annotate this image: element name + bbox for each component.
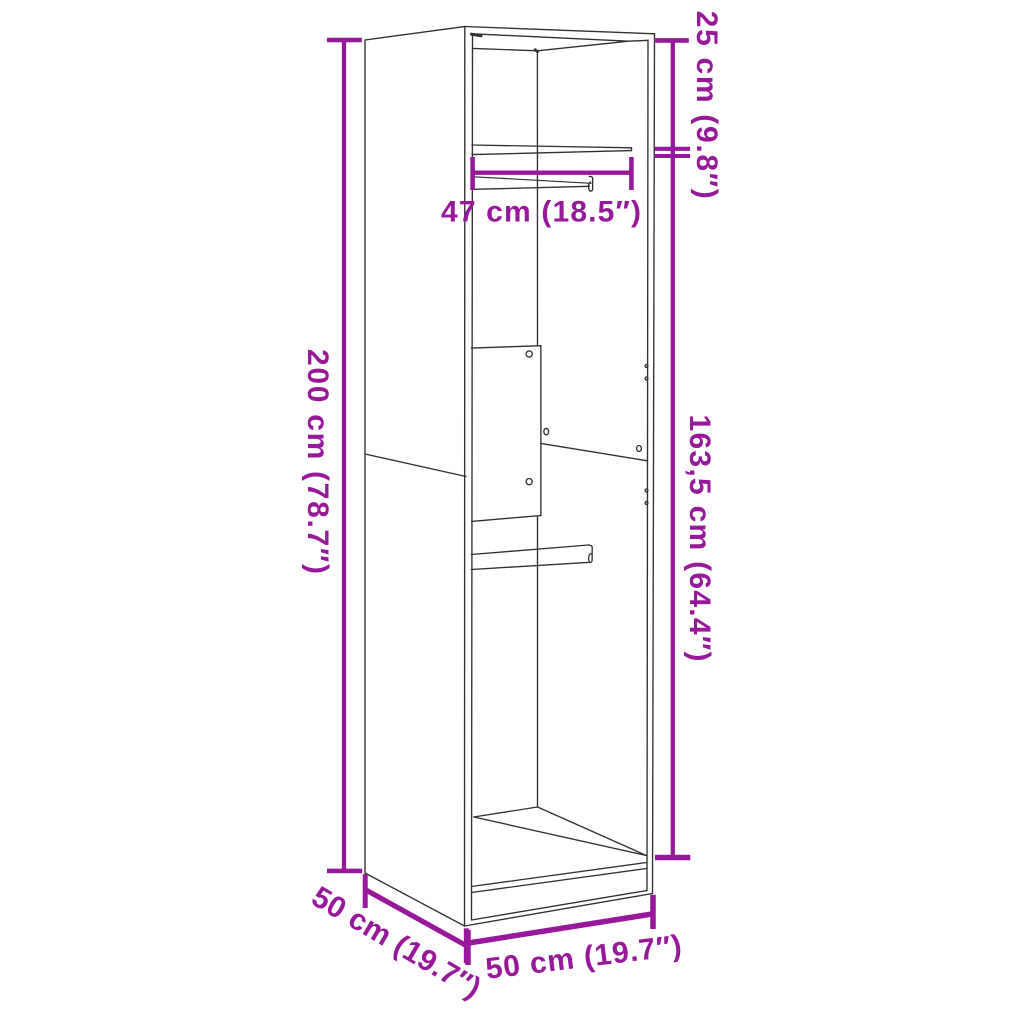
svg-text:25 cm (9.8″): 25 cm (9.8″) <box>690 11 723 199</box>
svg-text:200 cm (78.7″): 200 cm (78.7″) <box>301 349 334 574</box>
svg-text:47 cm (18.5″): 47 cm (18.5″) <box>441 195 641 228</box>
svg-text:163,5 cm (64.4″): 163,5 cm (64.4″) <box>683 415 716 662</box>
